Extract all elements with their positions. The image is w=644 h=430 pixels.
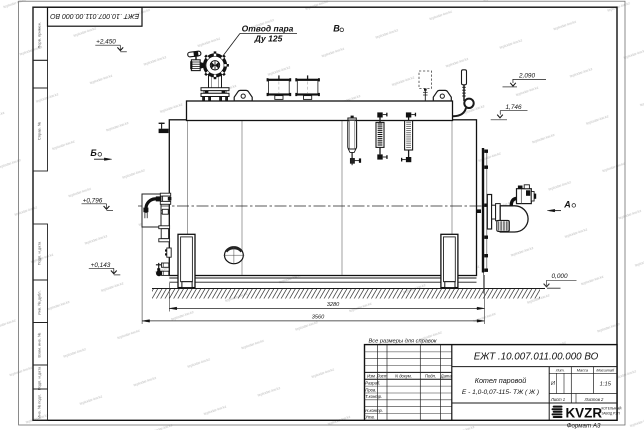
svg-text:+0,796: +0,796 <box>83 197 103 204</box>
svg-text:1,746: 1,746 <box>506 104 522 111</box>
svg-text:Н.контр.: Н.контр. <box>365 408 383 413</box>
svg-text:Подп.: Подп. <box>425 374 436 379</box>
svg-text:Изм: Изм <box>367 374 375 379</box>
svg-text:Справ. №: Справ. № <box>37 122 42 140</box>
svg-text:Лист 1: Лист 1 <box>550 397 565 402</box>
svg-text:KVZR: KVZR <box>566 405 603 421</box>
svg-text:Подп. и дата: Подп. и дата <box>37 366 42 390</box>
svg-text:Лист: Лист <box>376 374 388 379</box>
svg-text:Инв. № подл.: Инв. № подл. <box>37 394 42 419</box>
svg-text:Разраб.: Разраб. <box>365 381 380 386</box>
svg-text:ЕЖТ .10.007.011.00.000 ВО: ЕЖТ .10.007.011.00.000 ВО <box>474 352 599 363</box>
svg-text:Б: Б <box>90 148 97 158</box>
svg-text:N докум.: N докум. <box>395 374 412 379</box>
svg-text:Все размеры для справок: Все размеры для справок <box>369 339 437 345</box>
svg-text:1:15: 1:15 <box>600 382 612 388</box>
svg-text:+2,450: +2,450 <box>96 39 116 46</box>
svg-text:КОТЕЛЬНЫЙ: КОТЕЛЬНЫЙ <box>602 407 623 411</box>
svg-text:3280: 3280 <box>327 302 340 308</box>
svg-text:Т.контр.: Т.контр. <box>365 394 382 399</box>
svg-text:В: В <box>333 24 340 34</box>
svg-text:ЕЖТ .10.007.011.00.000 ВО: ЕЖТ .10.007.011.00.000 ВО <box>50 12 140 19</box>
svg-text:2,090: 2,090 <box>518 73 535 80</box>
svg-text:Лит.: Лит. <box>555 369 565 373</box>
svg-text:А: А <box>563 199 571 209</box>
svg-text:Инв. № дубл.: Инв. № дубл. <box>37 290 42 315</box>
svg-text:Взам. инв. №: Взам. инв. № <box>37 333 42 358</box>
svg-text:Котел паровой: Котел паровой <box>475 376 527 385</box>
svg-text:Пров.: Пров. <box>365 387 376 392</box>
svg-text:Отвод пара: Отвод пара <box>242 24 294 34</box>
svg-text:0,000: 0,000 <box>552 273 568 280</box>
svg-text:Дата: Дата <box>440 374 453 379</box>
svg-text:Листов 2: Листов 2 <box>584 397 604 402</box>
svg-text:Ду 125: Ду 125 <box>254 34 283 44</box>
svg-text:Формат А3: Формат А3 <box>567 423 601 430</box>
svg-text:ЗАВОД РЭП: ЗАВОД РЭП <box>602 412 621 416</box>
svg-text:3560: 3560 <box>312 315 325 321</box>
svg-text:Утв.: Утв. <box>365 415 375 420</box>
svg-text:Перв. примен.: Перв. примен. <box>37 22 42 49</box>
svg-text:И: И <box>551 381 555 387</box>
svg-text:Масштаб: Масштаб <box>596 369 615 373</box>
svg-text:Подп. и дата: Подп. и дата <box>37 241 42 265</box>
svg-text:Масса: Масса <box>577 369 588 373</box>
svg-text:Е - 1,0-0,07-115- ТЖ ( Ж ): Е - 1,0-0,07-115- ТЖ ( Ж ) <box>462 389 539 396</box>
